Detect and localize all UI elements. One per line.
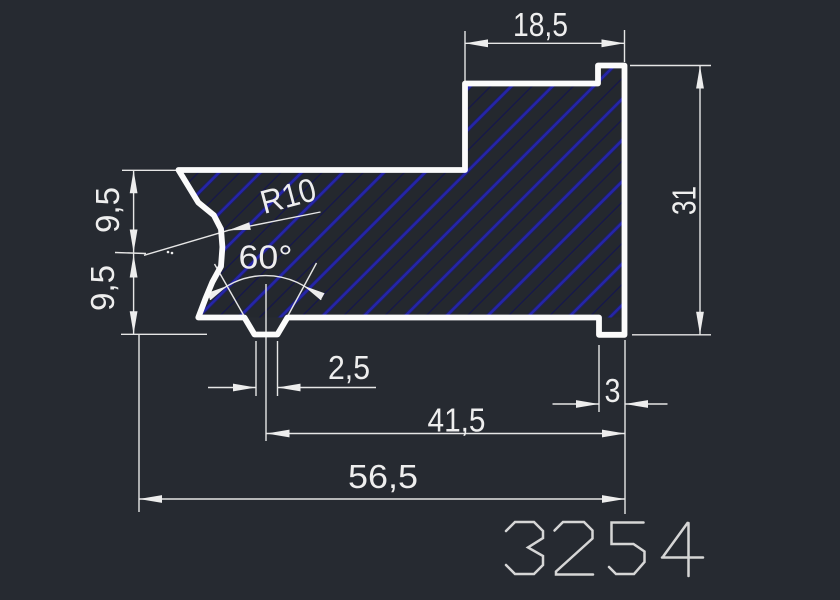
- svg-text:60°: 60°: [239, 239, 293, 276]
- svg-text:2,5: 2,5: [328, 349, 370, 386]
- svg-text:3: 3: [605, 372, 621, 409]
- svg-text:31: 31: [666, 186, 703, 215]
- svg-text:18,5: 18,5: [513, 6, 568, 43]
- svg-text:9,5: 9,5: [84, 265, 121, 311]
- svg-text:56,5: 56,5: [348, 458, 418, 495]
- svg-text:41,5: 41,5: [428, 402, 486, 439]
- svg-text:9,5: 9,5: [89, 187, 126, 233]
